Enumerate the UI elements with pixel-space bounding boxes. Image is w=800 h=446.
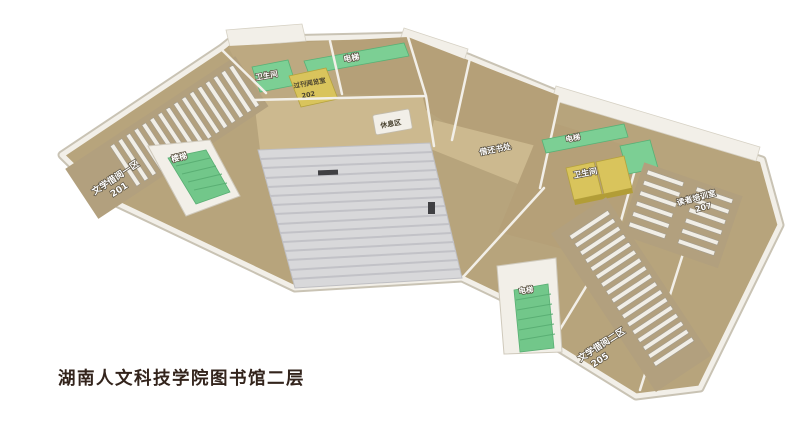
page-title: 湖南人文科技学院图书馆二层 — [58, 368, 305, 389]
atrium-mark-left — [318, 170, 338, 176]
atrium-mark-right — [428, 202, 435, 214]
stairs-bottom: 电梯 — [497, 258, 562, 354]
library-floor-map: 文学借阅一区 201 楼梯 电梯 卫生间 过刊阅览室 202 休息区 借还书处 — [0, 0, 800, 446]
floor-map-page: 文学借阅一区 201 楼梯 电梯 卫生间 过刊阅览室 202 休息区 借还书处 — [0, 0, 800, 446]
